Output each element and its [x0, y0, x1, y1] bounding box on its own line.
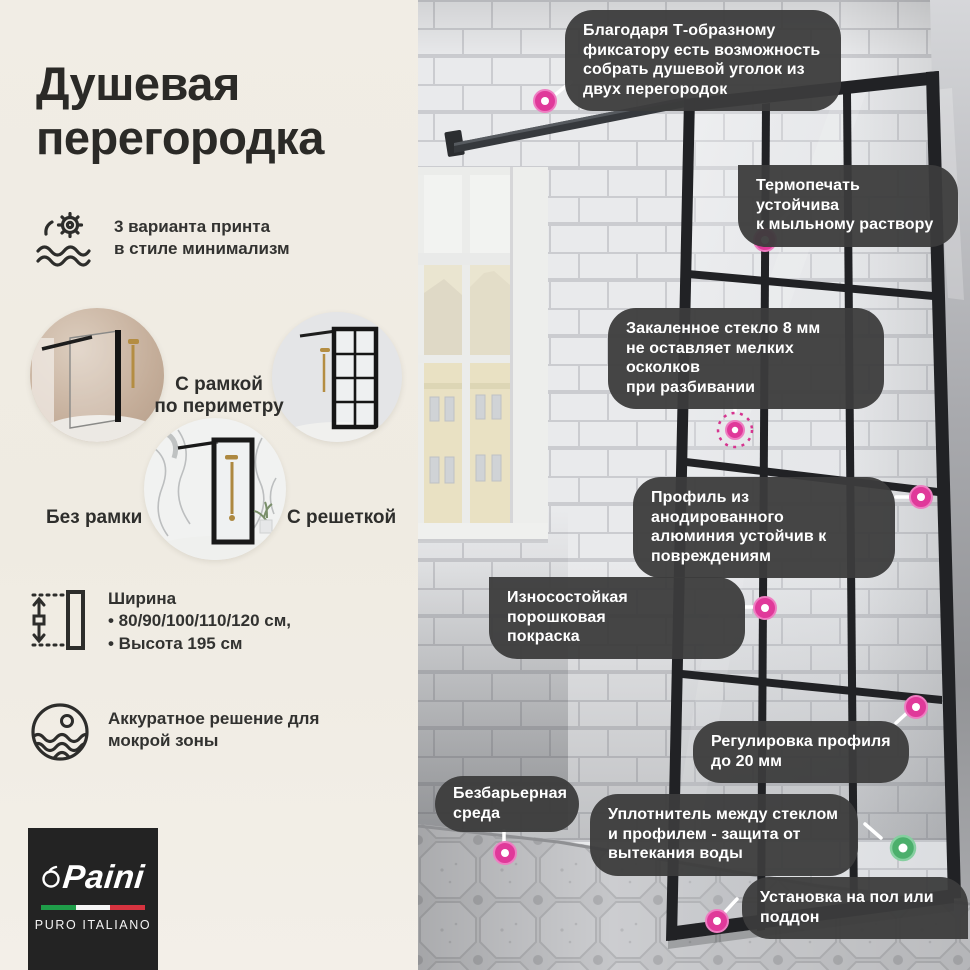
feature-wet-zone: Аккуратное решение для мокрой зоны: [28, 700, 408, 770]
callout-adjustment: Регулировка профиля до 20 мм: [693, 721, 909, 783]
window: [418, 167, 548, 543]
feature-wet-zone-text: Аккуратное решение для мокрой зоны: [108, 708, 378, 753]
variant-label-frameless: Без рамки: [46, 507, 142, 529]
feature-dimensions-text: Ширина • 80/90/100/110/120 см, • Высота …: [108, 588, 378, 655]
infographic-root: Душевая перегородка 3 варианта принта в …: [0, 0, 970, 970]
callout-profile: Профиль из анодированного алюминия устой…: [633, 477, 895, 578]
feature-dimensions: Ширина • 80/90/100/110/120 см, • Высота …: [28, 588, 408, 668]
callout-tempered-glass: Закаленное стекло 8 мм не оставляет мелк…: [608, 308, 884, 409]
marker-installation: [706, 910, 728, 932]
marker-adjustment: [905, 696, 927, 718]
variant-label-perimeter-frame: С рамкой по периметру: [140, 374, 298, 419]
marker-profile: [910, 486, 932, 508]
brand-ring-icon: [41, 864, 61, 890]
feature-prints-text: 3 варианта принта в стиле минимализм: [114, 216, 384, 261]
brand-name: Paini: [61, 858, 146, 896]
callout-barrier-free: Безбарьерная среда: [435, 776, 579, 832]
variant-photo-perimeter-frame: [144, 418, 286, 560]
marker-seal: [891, 836, 915, 860]
feature-prints: 3 варианта принта в стиле минимализм: [34, 212, 414, 282]
callout-t-fixator: Благодаря Т-образному фиксатору есть воз…: [565, 10, 841, 111]
brand-logo: Paini PURO ITALIANO: [28, 828, 158, 970]
callout-thermoprint: Термопечать устойчива к мыльному раствор…: [738, 165, 958, 247]
marker-barrier-free: [494, 842, 516, 864]
marker-coating: [754, 597, 776, 619]
print-icon: [34, 212, 94, 268]
italian-flag-stripe: [41, 905, 145, 910]
callout-coating: Износостойкая порошковая покраска: [489, 577, 745, 659]
variant-perimeter-art: [144, 418, 286, 560]
wet-zone-icon: [28, 700, 92, 764]
page-title: Душевая перегородка: [36, 57, 324, 163]
callout-installation: Установка на пол или поддон: [742, 877, 968, 939]
width-icon: [28, 588, 92, 652]
marker-t-fixator: [534, 90, 556, 112]
callout-seal: Уплотнитель между стеклом и профилем - з…: [590, 794, 858, 876]
brand-tagline: PURO ITALIANO: [28, 918, 158, 932]
brand-row: Paini: [28, 858, 158, 896]
variant-label-grid: С решеткой: [287, 507, 396, 529]
